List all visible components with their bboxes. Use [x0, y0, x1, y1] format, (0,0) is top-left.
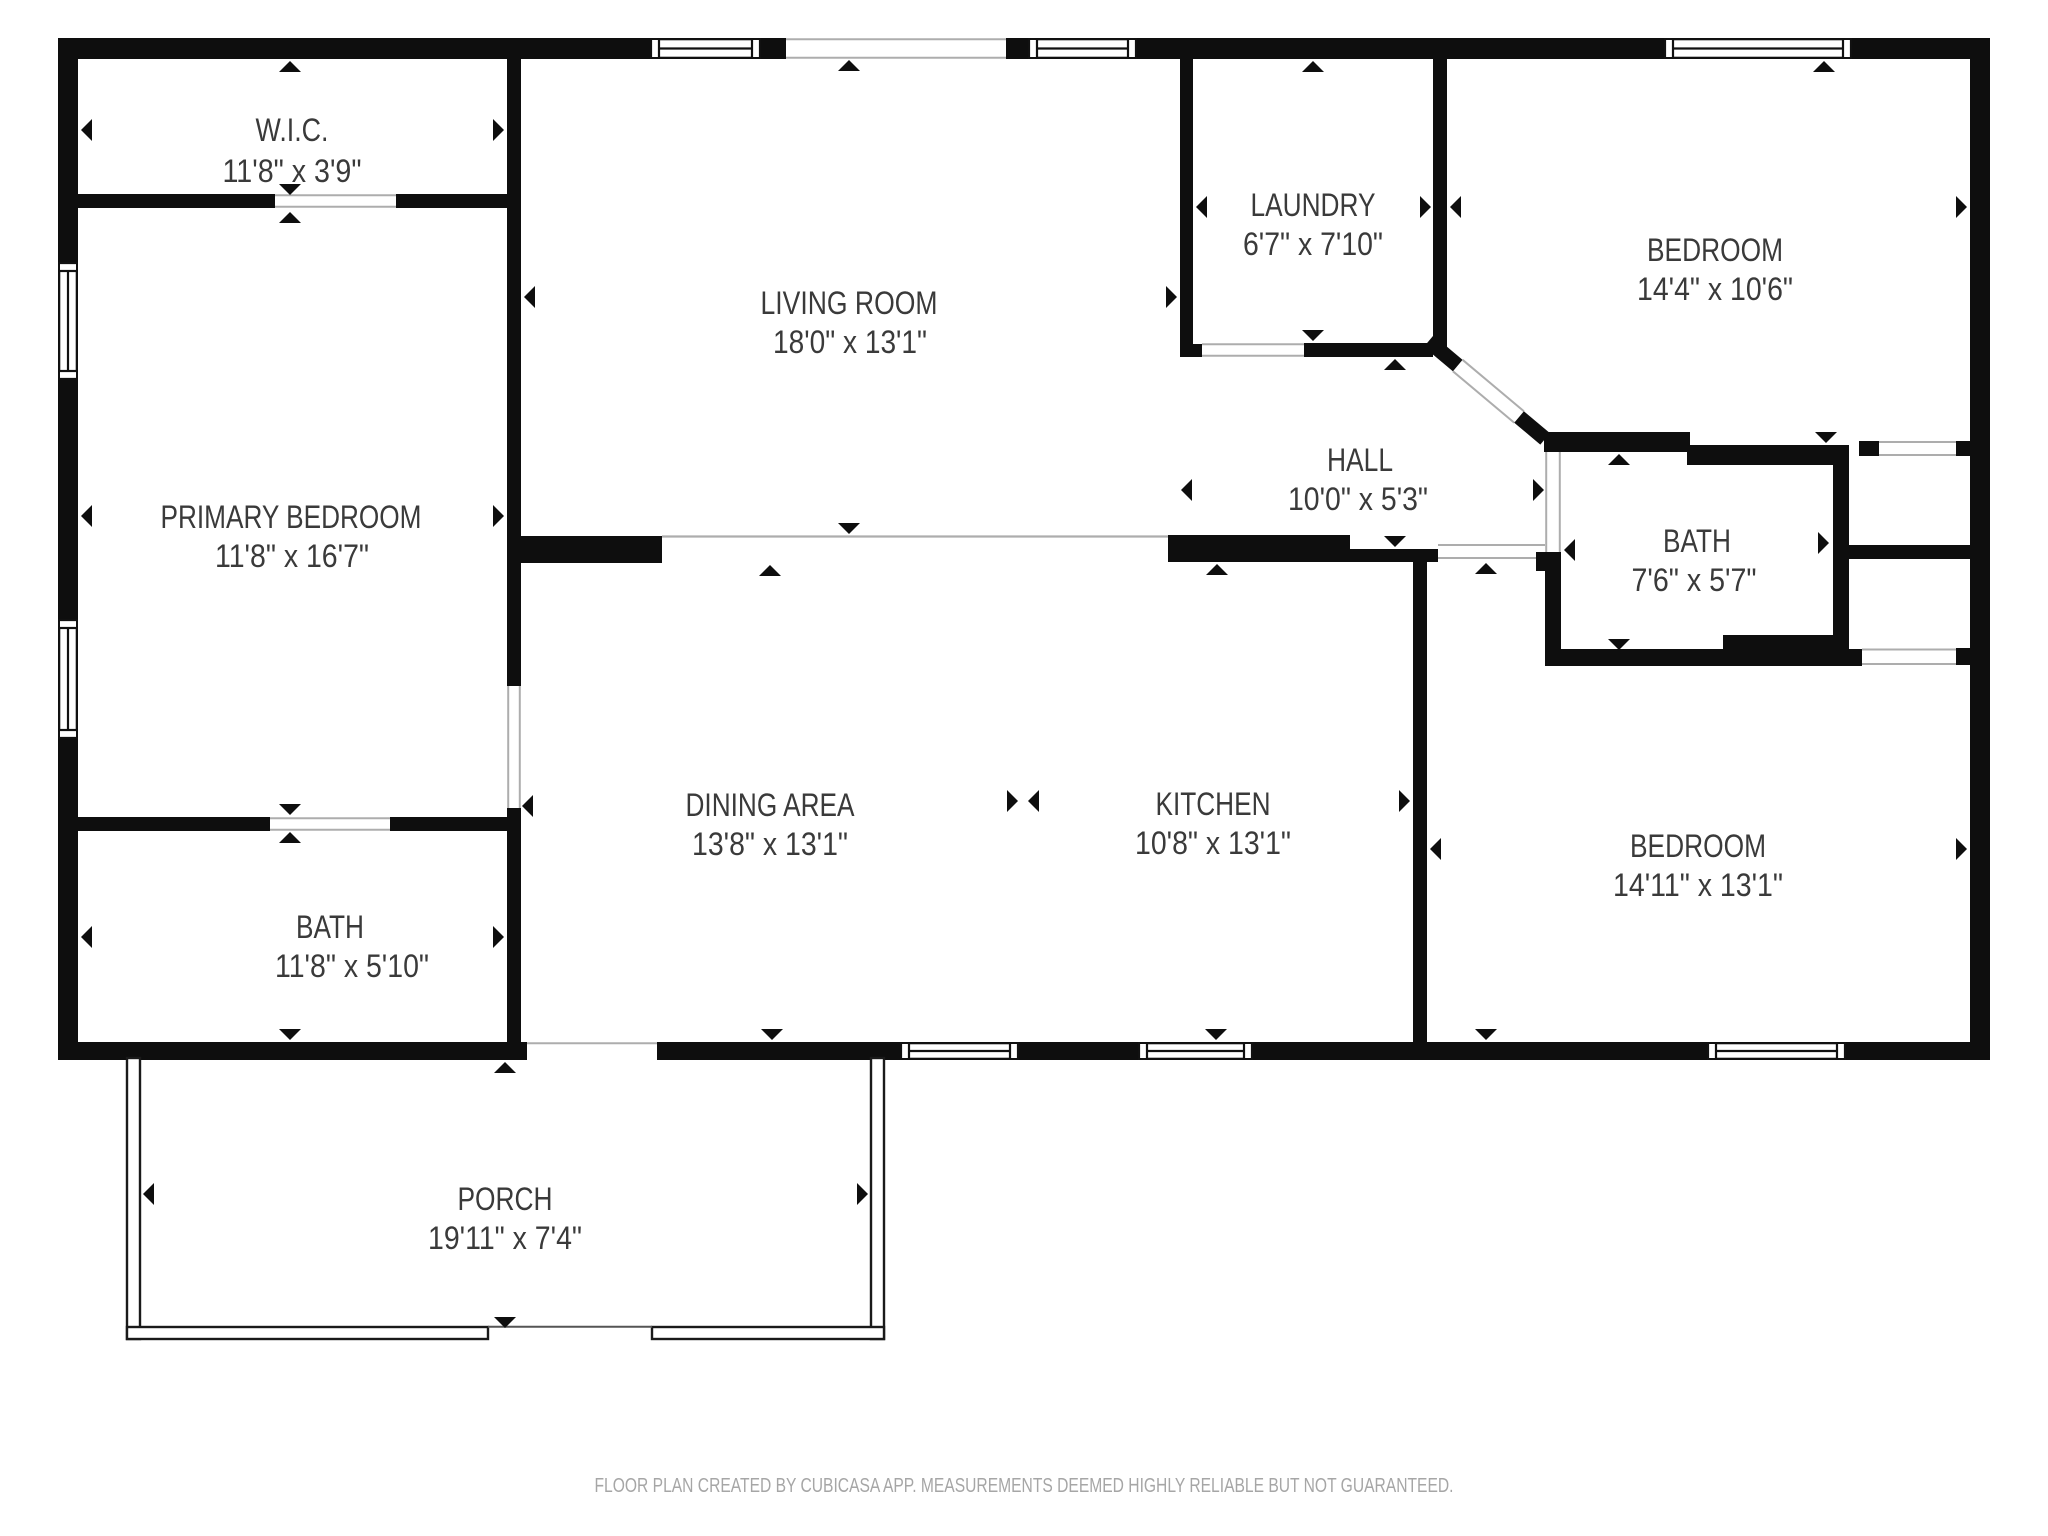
svg-text:7'6" x 5'7": 7'6" x 5'7" [1632, 562, 1757, 598]
svg-text:6'7" x 7'10": 6'7" x 7'10" [1243, 226, 1383, 262]
svg-text:14'11" x 13'1": 14'11" x 13'1" [1613, 867, 1783, 903]
svg-text:DINING AREA: DINING AREA [686, 787, 856, 823]
svg-text:FLOOR PLAN CREATED BY CUBICASA: FLOOR PLAN CREATED BY CUBICASA APP. MEAS… [595, 1474, 1454, 1497]
svg-text:PRIMARY BEDROOM: PRIMARY BEDROOM [161, 499, 422, 535]
svg-text:PORCH: PORCH [458, 1181, 553, 1217]
svg-text:11'8" x 5'10": 11'8" x 5'10" [275, 948, 429, 984]
svg-text:14'4" x 10'6": 14'4" x 10'6" [1637, 271, 1793, 307]
svg-text:BEDROOM: BEDROOM [1647, 232, 1783, 268]
svg-text:13'8" x 13'1": 13'8" x 13'1" [692, 826, 848, 862]
svg-text:LIVING ROOM: LIVING ROOM [761, 285, 938, 321]
svg-text:LAUNDRY: LAUNDRY [1251, 187, 1376, 223]
svg-text:18'0" x 13'1": 18'0" x 13'1" [773, 324, 927, 360]
svg-text:KITCHEN: KITCHEN [1156, 786, 1271, 822]
svg-text:BATH: BATH [296, 909, 364, 945]
svg-text:11'8" x 3'9": 11'8" x 3'9" [223, 153, 362, 189]
svg-text:10'0" x 5'3": 10'0" x 5'3" [1288, 481, 1428, 517]
svg-text:HALL: HALL [1327, 442, 1393, 478]
svg-text:BATH: BATH [1663, 523, 1731, 559]
svg-text:19'11" x 7'4": 19'11" x 7'4" [428, 1220, 582, 1256]
svg-text:W.I.C.: W.I.C. [256, 112, 329, 148]
svg-text:10'8" x 13'1": 10'8" x 13'1" [1135, 825, 1291, 861]
svg-text:BEDROOM: BEDROOM [1630, 828, 1766, 864]
svg-text:11'8" x 16'7": 11'8" x 16'7" [215, 538, 369, 574]
